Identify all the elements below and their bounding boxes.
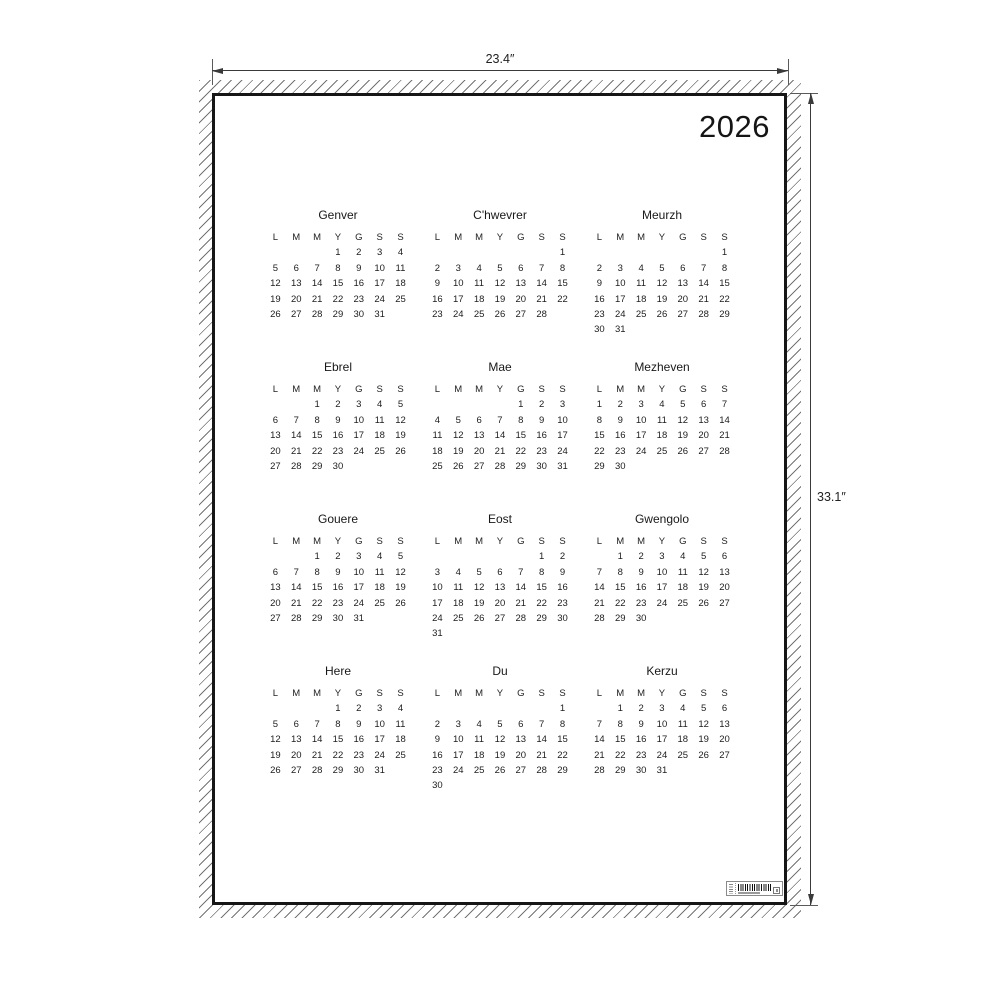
day-cell: 7 (510, 565, 531, 580)
day-cell: 17 (369, 732, 390, 747)
day-cell: 3 (348, 397, 369, 412)
day-cell: 9 (328, 413, 349, 428)
day-cell: 11 (369, 413, 390, 428)
weekday-cell: Y (490, 686, 511, 701)
day-cell: 23 (328, 444, 349, 459)
day-cell: 23 (552, 596, 573, 611)
day-cell: 19 (265, 292, 286, 307)
day-cell: 7 (490, 413, 511, 428)
day-cell: 30 (348, 307, 369, 322)
empty-cell (672, 763, 693, 778)
empty-cell (714, 459, 735, 474)
day-cell: 18 (448, 596, 469, 611)
weekday-cell: G (510, 686, 531, 701)
day-cell: 31 (427, 626, 448, 641)
day-cell: 27 (265, 611, 286, 626)
day-cell: 30 (610, 459, 631, 474)
day-cell: 16 (427, 748, 448, 763)
poster-mockup-scene: 23.4″ 33.1″ 2026 GenverLMMYGSS1234567891… (0, 0, 1000, 1000)
day-cell: 17 (652, 580, 673, 595)
day-cell: 16 (552, 580, 573, 595)
height-dimension-line (810, 93, 811, 905)
day-cell: 7 (307, 717, 328, 732)
day-cell: 2 (610, 397, 631, 412)
weekday-cell: M (286, 382, 307, 397)
day-cell: 30 (631, 763, 652, 778)
day-cell: 24 (369, 292, 390, 307)
day-cell: 24 (610, 307, 631, 322)
day-cell: 14 (531, 732, 552, 747)
day-cell: 7 (693, 261, 714, 276)
day-cell: 1 (510, 397, 531, 412)
weekday-cell: M (448, 686, 469, 701)
day-cell: 11 (672, 565, 693, 580)
month-title: Mae (427, 360, 573, 374)
day-cell: 18 (369, 428, 390, 443)
day-cell: 6 (714, 549, 735, 564)
day-cell: 4 (369, 549, 390, 564)
day-cell: 7 (286, 565, 307, 580)
day-cell: 7 (589, 565, 610, 580)
day-cell: 13 (510, 732, 531, 747)
day-cell: 11 (631, 276, 652, 291)
week-row: 6789101112 (265, 413, 411, 428)
empty-cell (286, 549, 307, 564)
week-row: 2345678 (427, 261, 573, 276)
week-row: 30 (427, 778, 573, 793)
empty-cell (552, 778, 573, 793)
day-cell: 14 (510, 580, 531, 595)
day-cell: 10 (369, 717, 390, 732)
day-cell: 28 (490, 459, 511, 474)
weekday-cell: M (286, 686, 307, 701)
day-cell: 24 (652, 596, 673, 611)
week-row: 78910111213 (589, 565, 735, 580)
day-cell: 9 (328, 565, 349, 580)
empty-cell (672, 245, 693, 260)
day-cell: 14 (531, 276, 552, 291)
day-cell: 16 (427, 292, 448, 307)
empty-cell (427, 245, 448, 260)
weekday-cell: M (631, 230, 652, 245)
empty-cell (448, 778, 469, 793)
day-cell: 31 (369, 307, 390, 322)
barcode-divider (735, 883, 736, 894)
week-row: 10111213141516 (427, 580, 573, 595)
weekday-cell: M (610, 230, 631, 245)
week-row: 123456 (589, 701, 735, 716)
week-row: 23242526272829 (427, 763, 573, 778)
weekday-cell: G (510, 382, 531, 397)
week-row: 19202122232425 (265, 748, 411, 763)
weekday-cell: S (390, 230, 411, 245)
day-cell: 8 (589, 413, 610, 428)
day-cell: 12 (265, 276, 286, 291)
empty-cell (286, 701, 307, 716)
empty-cell (510, 778, 531, 793)
day-cell: 26 (469, 611, 490, 626)
weekday-cell: S (714, 382, 735, 397)
day-cell: 25 (390, 748, 411, 763)
weekday-cell: Y (328, 534, 349, 549)
dimension-arrow-up-icon (808, 93, 814, 104)
weekday-cell: M (307, 382, 328, 397)
week-row: 12131415161718 (265, 732, 411, 747)
day-cell: 10 (631, 413, 652, 428)
weekday-cell: L (427, 382, 448, 397)
day-cell: 15 (307, 580, 328, 595)
day-cell: 26 (652, 307, 673, 322)
day-cell: 23 (427, 307, 448, 322)
weekday-cell: S (390, 382, 411, 397)
day-cell: 11 (672, 717, 693, 732)
empty-cell (390, 611, 411, 626)
weekday-cell: G (348, 686, 369, 701)
day-cell: 21 (714, 428, 735, 443)
day-cell: 28 (589, 763, 610, 778)
day-cell: 9 (531, 413, 552, 428)
month-mezheven: MezhevenLMMYGSS1234567891011121314151617… (589, 360, 735, 512)
empty-cell (265, 701, 286, 716)
day-cell: 13 (510, 276, 531, 291)
day-cell: 2 (348, 701, 369, 716)
day-cell: 7 (714, 397, 735, 412)
week-row: 15161718192021 (589, 428, 735, 443)
day-cell: 19 (652, 292, 673, 307)
day-cell: 12 (693, 565, 714, 580)
weekday-cell: L (589, 382, 610, 397)
empty-cell (714, 322, 735, 337)
weekday-cell: S (531, 230, 552, 245)
day-cell: 19 (490, 292, 511, 307)
day-cell: 3 (652, 549, 673, 564)
day-cell: 27 (490, 611, 511, 626)
day-cell: 1 (714, 245, 735, 260)
day-cell: 13 (286, 732, 307, 747)
day-cell: 8 (552, 261, 573, 276)
month-ebrel: EbrelLMMYGSS1234567891011121314151617181… (265, 360, 411, 512)
day-cell: 6 (672, 261, 693, 276)
day-cell: 29 (714, 307, 735, 322)
day-cell: 23 (348, 748, 369, 763)
day-cell: 21 (286, 596, 307, 611)
day-cell: 26 (672, 444, 693, 459)
day-cell: 28 (286, 459, 307, 474)
day-cell: 28 (307, 763, 328, 778)
day-cell: 6 (469, 413, 490, 428)
day-cell: 3 (427, 565, 448, 580)
weekday-cell: Y (652, 686, 673, 701)
week-row: 20212223242526 (265, 596, 411, 611)
empty-cell (448, 626, 469, 641)
weekday-header-row: LMMYGSS (589, 534, 735, 549)
day-cell: 25 (672, 596, 693, 611)
weekday-cell: M (448, 382, 469, 397)
day-cell: 21 (490, 444, 511, 459)
empty-cell (265, 397, 286, 412)
empty-cell (390, 459, 411, 474)
week-row: 21222324252627 (589, 748, 735, 763)
day-cell: 14 (589, 580, 610, 595)
day-cell: 30 (552, 611, 573, 626)
day-cell: 6 (265, 413, 286, 428)
day-cell: 5 (490, 717, 511, 732)
empty-cell (631, 322, 652, 337)
day-cell: 28 (693, 307, 714, 322)
day-cell: 18 (469, 748, 490, 763)
day-cell: 18 (631, 292, 652, 307)
weekday-header-row: LMMYGSS (427, 382, 573, 397)
day-cell: 26 (490, 307, 511, 322)
empty-cell (693, 245, 714, 260)
day-cell: 2 (589, 261, 610, 276)
day-cell: 27 (286, 763, 307, 778)
week-row: 27282930 (265, 459, 411, 474)
day-cell: 16 (631, 580, 652, 595)
month-mae: MaeLMMYGSS123456789101112131415161718192… (427, 360, 573, 512)
day-cell: 9 (427, 276, 448, 291)
week-row: 24252627282930 (427, 611, 573, 626)
day-cell: 3 (369, 245, 390, 260)
empty-cell (307, 701, 328, 716)
day-cell: 8 (610, 717, 631, 732)
empty-cell (510, 245, 531, 260)
empty-cell (286, 397, 307, 412)
month-chwevrer: C'hwevrerLMMYGSS123456789101112131415161… (427, 208, 573, 360)
day-cell: 26 (390, 596, 411, 611)
month-title: Du (427, 664, 573, 678)
week-row: 2728293031 (265, 611, 411, 626)
day-cell: 6 (510, 261, 531, 276)
day-cell: 30 (328, 459, 349, 474)
day-cell: 22 (552, 748, 573, 763)
empty-cell (510, 549, 531, 564)
day-cell: 7 (531, 717, 552, 732)
barcode-rotated-text (729, 884, 733, 894)
weekday-cell: L (265, 382, 286, 397)
week-row: 2930 (589, 459, 735, 474)
day-cell: 8 (328, 261, 349, 276)
week-row: 14151617181920 (589, 732, 735, 747)
day-cell: 1 (589, 397, 610, 412)
day-cell: 25 (631, 307, 652, 322)
empty-cell (448, 245, 469, 260)
weekday-cell: M (286, 230, 307, 245)
weekday-cell: S (552, 382, 573, 397)
dimension-arrow-down-icon (808, 894, 814, 905)
day-cell: 24 (652, 748, 673, 763)
day-cell: 22 (510, 444, 531, 459)
day-cell: 3 (448, 261, 469, 276)
day-cell: 2 (531, 397, 552, 412)
day-cell: 15 (328, 732, 349, 747)
day-cell: 27 (672, 307, 693, 322)
day-cell: 4 (369, 397, 390, 412)
day-cell: 27 (510, 307, 531, 322)
day-cell: 12 (652, 276, 673, 291)
day-cell: 22 (307, 596, 328, 611)
day-cell: 20 (714, 732, 735, 747)
weekday-header-row: LMMYGSS (265, 686, 411, 701)
day-cell: 20 (286, 292, 307, 307)
day-cell: 16 (531, 428, 552, 443)
empty-cell (510, 701, 531, 716)
day-cell: 14 (693, 276, 714, 291)
weekday-cell: S (693, 230, 714, 245)
day-cell: 11 (369, 565, 390, 580)
day-cell: 23 (427, 763, 448, 778)
day-cell: 10 (652, 565, 673, 580)
empty-cell (672, 459, 693, 474)
day-cell: 13 (490, 580, 511, 595)
day-cell: 15 (589, 428, 610, 443)
day-cell: 6 (714, 701, 735, 716)
day-cell: 14 (286, 428, 307, 443)
day-cell: 28 (714, 444, 735, 459)
weekday-cell: L (427, 230, 448, 245)
month-title: Here (265, 664, 411, 678)
day-cell: 22 (531, 596, 552, 611)
empty-cell (469, 397, 490, 412)
day-cell: 2 (348, 245, 369, 260)
weekday-cell: L (265, 230, 286, 245)
week-row: 262728293031 (265, 763, 411, 778)
day-cell: 16 (348, 276, 369, 291)
day-cell: 23 (531, 444, 552, 459)
week-row: 1234 (265, 701, 411, 716)
empty-cell (369, 459, 390, 474)
day-cell: 8 (510, 413, 531, 428)
day-cell: 5 (490, 261, 511, 276)
weekday-cell: M (307, 534, 328, 549)
day-cell: 3 (448, 717, 469, 732)
day-cell: 6 (286, 261, 307, 276)
day-cell: 10 (427, 580, 448, 595)
weekday-cell: G (672, 534, 693, 549)
day-cell: 16 (589, 292, 610, 307)
day-cell: 12 (672, 413, 693, 428)
weekday-cell: S (369, 686, 390, 701)
day-cell: 10 (369, 261, 390, 276)
day-cell: 24 (427, 611, 448, 626)
day-cell: 10 (448, 276, 469, 291)
month-title: C'hwevrer (427, 208, 573, 222)
weekday-cell: G (672, 686, 693, 701)
day-cell: 14 (490, 428, 511, 443)
day-cell: 2 (328, 549, 349, 564)
empty-cell (348, 459, 369, 474)
week-row: 11121314151617 (427, 428, 573, 443)
empty-cell (714, 611, 735, 626)
day-cell: 23 (328, 596, 349, 611)
empty-cell (469, 549, 490, 564)
weekday-cell: M (610, 382, 631, 397)
weekday-cell: G (672, 230, 693, 245)
day-cell: 22 (328, 748, 349, 763)
weekday-cell: S (714, 686, 735, 701)
empty-cell (631, 245, 652, 260)
month-title: Genver (265, 208, 411, 222)
day-cell: 15 (531, 580, 552, 595)
weekday-cell: G (348, 382, 369, 397)
weekday-header-row: LMMYGSS (265, 534, 411, 549)
empty-cell (265, 245, 286, 260)
weekday-cell: M (307, 686, 328, 701)
day-cell: 5 (693, 549, 714, 564)
week-row: 9101112131415 (427, 732, 573, 747)
empty-cell (490, 549, 511, 564)
day-cell: 17 (652, 732, 673, 747)
day-cell: 5 (390, 397, 411, 412)
week-row: 16171819202122 (589, 292, 735, 307)
day-cell: 22 (552, 292, 573, 307)
day-cell: 4 (469, 261, 490, 276)
day-cell: 29 (610, 763, 631, 778)
height-dimension-label: 33.1″ (817, 490, 846, 504)
weekday-header-row: LMMYGSS (427, 534, 573, 549)
week-row: 6789101112 (265, 565, 411, 580)
week-row: 19202122232425 (265, 292, 411, 307)
day-cell: 17 (427, 596, 448, 611)
weekday-cell: M (286, 534, 307, 549)
day-cell: 13 (469, 428, 490, 443)
weekday-cell: G (510, 534, 531, 549)
week-row: 12131415161718 (265, 276, 411, 291)
week-row: 17181920212223 (427, 596, 573, 611)
weekday-header-row: LMMYGSS (589, 230, 735, 245)
day-cell: 29 (307, 459, 328, 474)
empty-cell (631, 459, 652, 474)
weekday-cell: M (610, 534, 631, 549)
day-cell: 20 (265, 444, 286, 459)
day-cell: 9 (631, 717, 652, 732)
day-cell: 26 (265, 307, 286, 322)
weekday-cell: M (307, 230, 328, 245)
empty-cell (531, 778, 552, 793)
month-title: Kerzu (589, 664, 735, 678)
weekday-cell: S (369, 230, 390, 245)
day-cell: 14 (714, 413, 735, 428)
week-row: 12345 (265, 397, 411, 412)
day-cell: 22 (714, 292, 735, 307)
day-cell: 15 (714, 276, 735, 291)
week-row: 12 (427, 549, 573, 564)
day-cell: 8 (552, 717, 573, 732)
week-row: 567891011 (265, 717, 411, 732)
barcode-label (726, 881, 783, 896)
day-cell: 18 (469, 292, 490, 307)
week-row: 13141516171819 (265, 580, 411, 595)
weekday-cell: S (369, 382, 390, 397)
day-cell: 3 (348, 549, 369, 564)
dimension-arrow-left-icon (212, 68, 223, 74)
day-cell: 23 (610, 444, 631, 459)
month-du: DuLMMYGSS1234567891011121314151617181920… (427, 664, 573, 816)
day-cell: 16 (631, 732, 652, 747)
day-cell: 30 (531, 459, 552, 474)
empty-cell (672, 611, 693, 626)
day-cell: 8 (328, 717, 349, 732)
day-cell: 21 (531, 748, 552, 763)
weekday-cell: Y (490, 230, 511, 245)
day-cell: 7 (531, 261, 552, 276)
month-title: Gwengolo (589, 512, 735, 526)
day-cell: 13 (672, 276, 693, 291)
empty-cell (286, 245, 307, 260)
day-cell: 10 (348, 565, 369, 580)
weekday-header-row: LMMYGSS (265, 230, 411, 245)
weekday-cell: S (369, 534, 390, 549)
